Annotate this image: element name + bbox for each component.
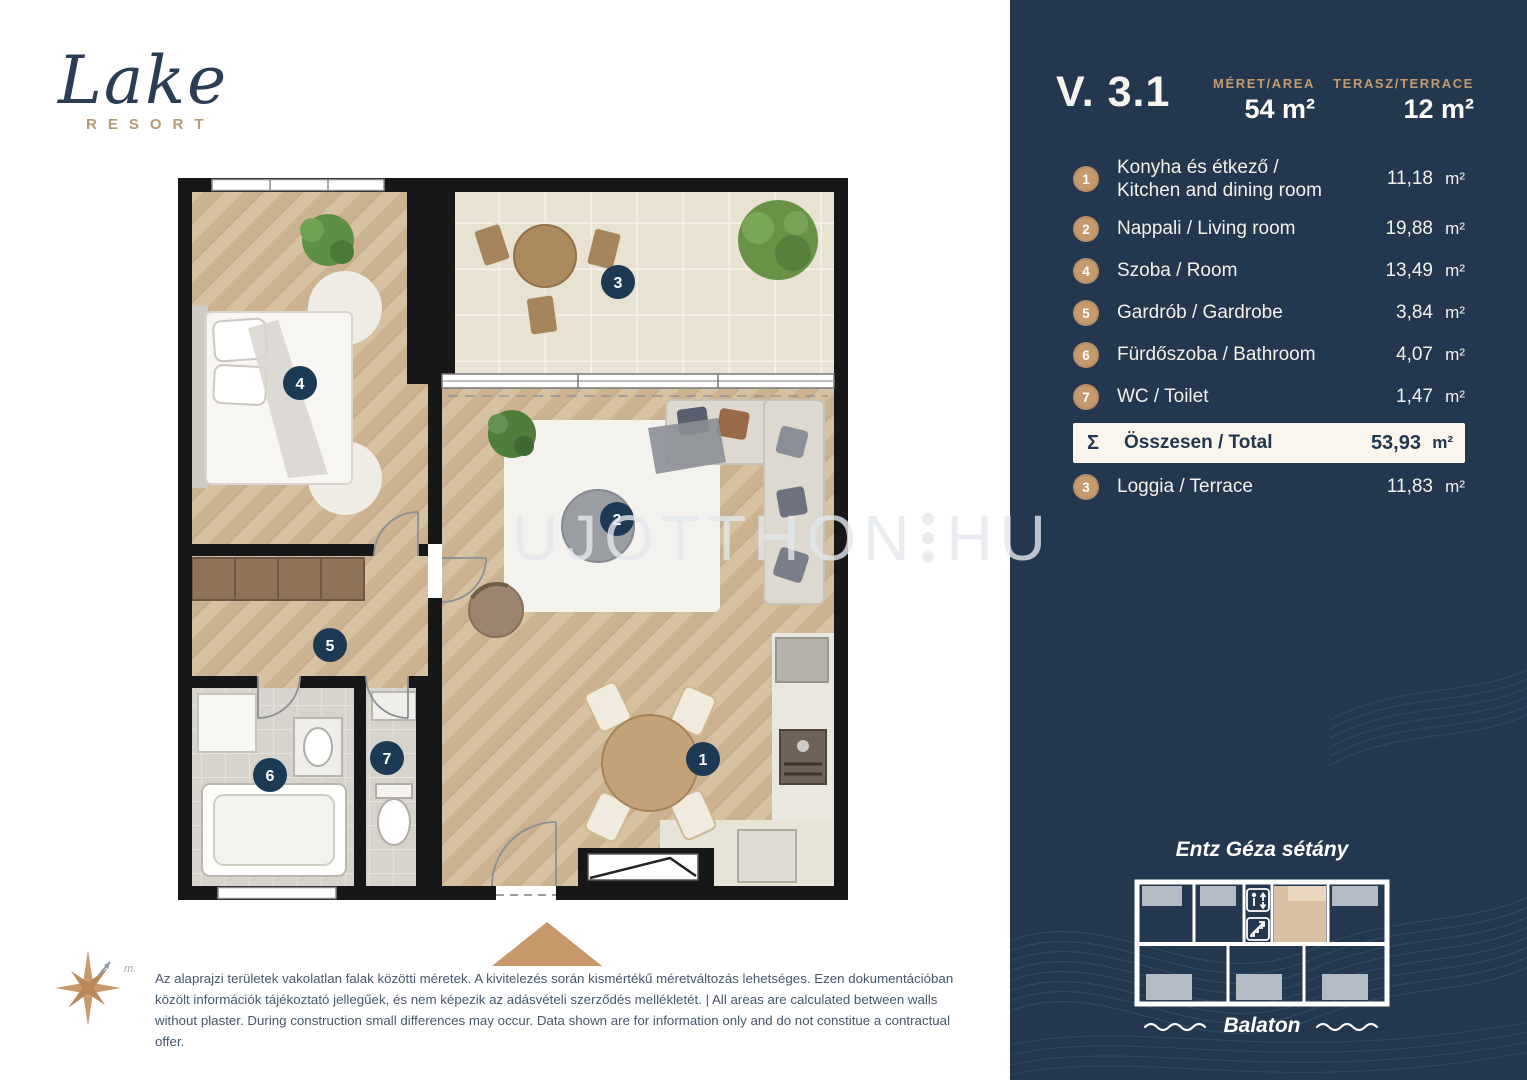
- marker-kitchen: 1: [686, 742, 720, 776]
- marker-living: 2: [600, 502, 634, 536]
- disclaimer-text: Az alaprajzi területek vakolatlan falak …: [155, 968, 955, 1052]
- svg-text:1: 1: [699, 752, 708, 769]
- street-name: Entz Géza sétány: [1122, 838, 1402, 862]
- loggia-row: 3 Loggia / Terrace 11,83 m²: [1073, 466, 1465, 508]
- building-minimap: [1132, 872, 1392, 1017]
- marker-bathroom: 6: [253, 758, 287, 792]
- washing-machine: [198, 694, 256, 752]
- room-number-badge: 2: [1073, 216, 1099, 242]
- wave-icon: [1143, 1019, 1209, 1033]
- room-number-badge: 6: [1073, 342, 1099, 368]
- room-area: 19,88: [1375, 218, 1433, 240]
- floor-plan-drawing: 1 2 3 4 5 6 7: [178, 178, 848, 900]
- total-label: Összesen / Total: [1124, 431, 1363, 454]
- floor-plan: 1 2 3 4 5 6 7: [178, 178, 848, 900]
- terrace-block: TERASZ/TERRACE 12 m²: [1333, 76, 1474, 125]
- room-area: 11,83: [1375, 476, 1433, 498]
- table-row: 6 Fürdőszoba / Bathroom 4,07 m²: [1073, 334, 1465, 376]
- room-area-unit: m²: [1433, 169, 1465, 189]
- marker-wardrobe: 5: [313, 628, 347, 662]
- sidebar: V. 3.1 MÉRET/AREA 54 m² TERASZ/TERRACE 1…: [1010, 0, 1527, 1080]
- terrace-tree: [738, 200, 818, 280]
- svg-text:7: 7: [383, 751, 392, 768]
- living-plant: [488, 410, 536, 458]
- terrace-label: TERASZ/TERRACE: [1333, 76, 1474, 91]
- table-row: 4 Szoba / Room 13,49 m²: [1073, 250, 1465, 292]
- marker-wc: 7: [370, 741, 404, 775]
- room-area-unit: m²: [1433, 345, 1465, 365]
- sigma-icon: Σ: [1080, 432, 1106, 455]
- room-name: Nappali / Living room: [1117, 217, 1375, 240]
- room-area-unit: m²: [1433, 477, 1465, 497]
- room-area-unit: m²: [1433, 219, 1465, 239]
- wardrobe: [192, 558, 364, 600]
- room-number-badge: 3: [1073, 474, 1099, 500]
- wave-icon: [1315, 1019, 1381, 1033]
- unit-id: V. 3.1: [1056, 68, 1170, 117]
- total-area-unit: m²: [1421, 433, 1453, 453]
- compass-icon: m.: [48, 948, 144, 1039]
- room-name: Szoba / Room: [1117, 259, 1375, 282]
- room-number-badge: 7: [1073, 384, 1099, 410]
- room-area-unit: m²: [1433, 387, 1465, 407]
- table-row: 5 Gardrób / Gardrobe 3,84 m²: [1073, 292, 1465, 334]
- marker-loggia: 3: [601, 265, 635, 299]
- toilet: [376, 784, 412, 845]
- table-row: 7 WC / Toilet 1,47 m²: [1073, 376, 1465, 418]
- room-area-unit: m²: [1433, 261, 1465, 281]
- watermark-dots-icon: [922, 513, 934, 563]
- svg-text:m.: m.: [124, 963, 136, 975]
- room-name: Konyha és étkező / Kitchen and dining ro…: [1117, 156, 1375, 202]
- brand-logo: Lake RESORT: [58, 48, 228, 133]
- room-name: Fürdőszoba / Bathroom: [1117, 343, 1375, 366]
- size-label: MÉRET/AREA: [1213, 76, 1315, 91]
- bathtub: [202, 784, 346, 876]
- svg-text:4: 4: [296, 376, 305, 393]
- room-area: 13,49: [1375, 260, 1433, 282]
- room-number-badge: 5: [1073, 300, 1099, 326]
- brand-name: Lake: [58, 48, 228, 114]
- elevator-icon: [1247, 889, 1269, 911]
- svg-text:5: 5: [326, 638, 335, 655]
- lake-label-row: Balaton: [1102, 1014, 1422, 1038]
- svg-text:3: 3: [614, 275, 623, 292]
- size-block: MÉRET/AREA 54 m²: [1213, 76, 1315, 125]
- stairs-icon: [1247, 918, 1269, 940]
- marker-room: 4: [283, 366, 317, 400]
- room-area: 11,18: [1375, 168, 1433, 190]
- table-row: 1 Konyha és étkező / Kitchen and dining …: [1073, 150, 1465, 208]
- svg-text:6: 6: [266, 768, 275, 785]
- room-area-unit: m²: [1433, 303, 1465, 323]
- brochure-page: Lake RESORT: [0, 0, 1527, 1080]
- total-row: Σ Összesen / Total 53,93 m²: [1073, 423, 1465, 463]
- room-area: 3,84: [1375, 302, 1433, 324]
- room-name: Gardrób / Gardrobe: [1117, 301, 1375, 324]
- room-area: 1,47: [1375, 386, 1433, 408]
- total-area: 53,93: [1363, 432, 1421, 455]
- room-number-badge: 4: [1073, 258, 1099, 284]
- lake-name: Balaton: [1223, 1014, 1300, 1038]
- room-list: 1 Konyha és étkező / Kitchen and dining …: [1073, 150, 1465, 508]
- armchair: [469, 583, 523, 637]
- room-name: WC / Toilet: [1117, 385, 1375, 408]
- room-name: Loggia / Terrace: [1117, 475, 1375, 498]
- terrace-value: 12 m²: [1333, 94, 1474, 125]
- svg-text:2: 2: [613, 512, 622, 529]
- bathroom-sink: [294, 718, 342, 776]
- highlighted-unit-balcony: [1288, 886, 1326, 901]
- table-row: 2 Nappali / Living room 19,88 m²: [1073, 208, 1465, 250]
- room-number-badge: 1: [1073, 166, 1099, 192]
- size-value: 54 m²: [1213, 94, 1315, 125]
- entrance-marker-triangle: [492, 922, 602, 966]
- room-area: 4,07: [1375, 344, 1433, 366]
- bed: [192, 306, 352, 488]
